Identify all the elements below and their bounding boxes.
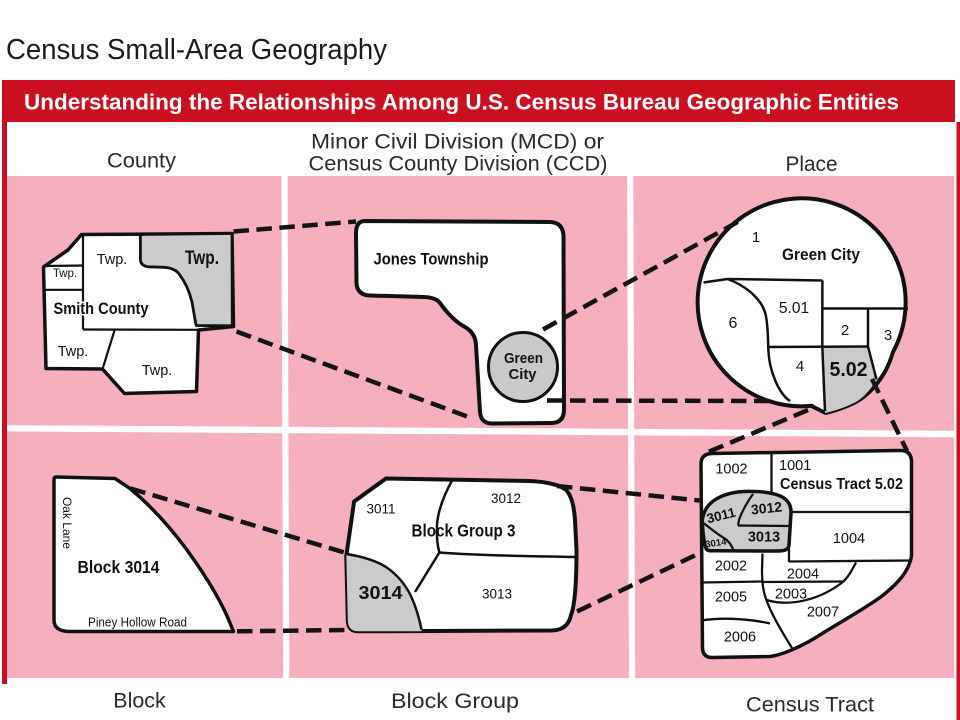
svg-text:3012: 3012 [491,491,521,506]
svg-text:4: 4 [796,358,804,375]
svg-text:Block 3014: Block 3014 [78,557,160,577]
svg-text:2003: 2003 [775,587,807,603]
svg-text:Smith County: Smith County [54,299,149,318]
svg-text:Green City: Green City [782,246,861,264]
svg-text:1: 1 [752,229,760,246]
svg-text:5.01: 5.01 [779,300,809,317]
svg-text:Census Tract 5.02: Census Tract 5.02 [780,476,903,493]
svg-text:Block Group 3: Block Group 3 [412,521,516,541]
svg-text:Green: Green [504,350,543,367]
svg-text:County: County [107,150,177,173]
svg-text:3011: 3011 [366,502,395,517]
svg-text:Census County Division (CCD): Census County Division (CCD) [309,153,608,176]
svg-text:Place: Place [786,153,838,176]
svg-text:3: 3 [884,327,892,344]
svg-text:2007: 2007 [807,605,839,621]
svg-text:2004: 2004 [787,567,819,583]
svg-text:Twp.: Twp. [185,248,219,269]
svg-text:Minor Civil Division (MCD) or: Minor Civil Division (MCD) or [311,131,604,154]
svg-text:City: City [509,366,538,383]
svg-text:Jones Township: Jones Township [374,251,489,269]
svg-text:2006: 2006 [724,630,756,646]
svg-text:2: 2 [841,322,849,339]
svg-text:Understanding the Relationship: Understanding the Relationships Among U.… [24,90,899,115]
svg-text:Oak Lane: Oak Lane [60,497,74,549]
svg-text:3013: 3013 [748,530,780,546]
svg-text:2002: 2002 [715,559,747,575]
svg-text:Twp.: Twp. [97,252,128,268]
svg-text:1001: 1001 [779,458,811,474]
svg-text:Twp.: Twp. [53,268,77,280]
svg-text:5.02: 5.02 [830,359,868,381]
svg-text:6: 6 [729,315,738,332]
svg-text:3013: 3013 [482,587,512,602]
svg-text:Twp.: Twp. [58,344,89,360]
svg-text:Twp.: Twp. [142,363,173,379]
svg-text:Piney Hollow Road: Piney Hollow Road [88,616,187,630]
svg-text:Census Tract: Census Tract [746,693,874,717]
svg-text:1002: 1002 [715,462,747,478]
svg-text:Census Small-Area Geography: Census Small-Area Geography [6,34,387,66]
svg-text:3014: 3014 [359,582,404,603]
svg-text:2005: 2005 [715,590,747,606]
svg-text:3012: 3012 [750,498,783,517]
svg-text:Block Group: Block Group [391,689,519,713]
svg-text:Block: Block [113,689,166,713]
svg-text:1004: 1004 [833,531,865,547]
